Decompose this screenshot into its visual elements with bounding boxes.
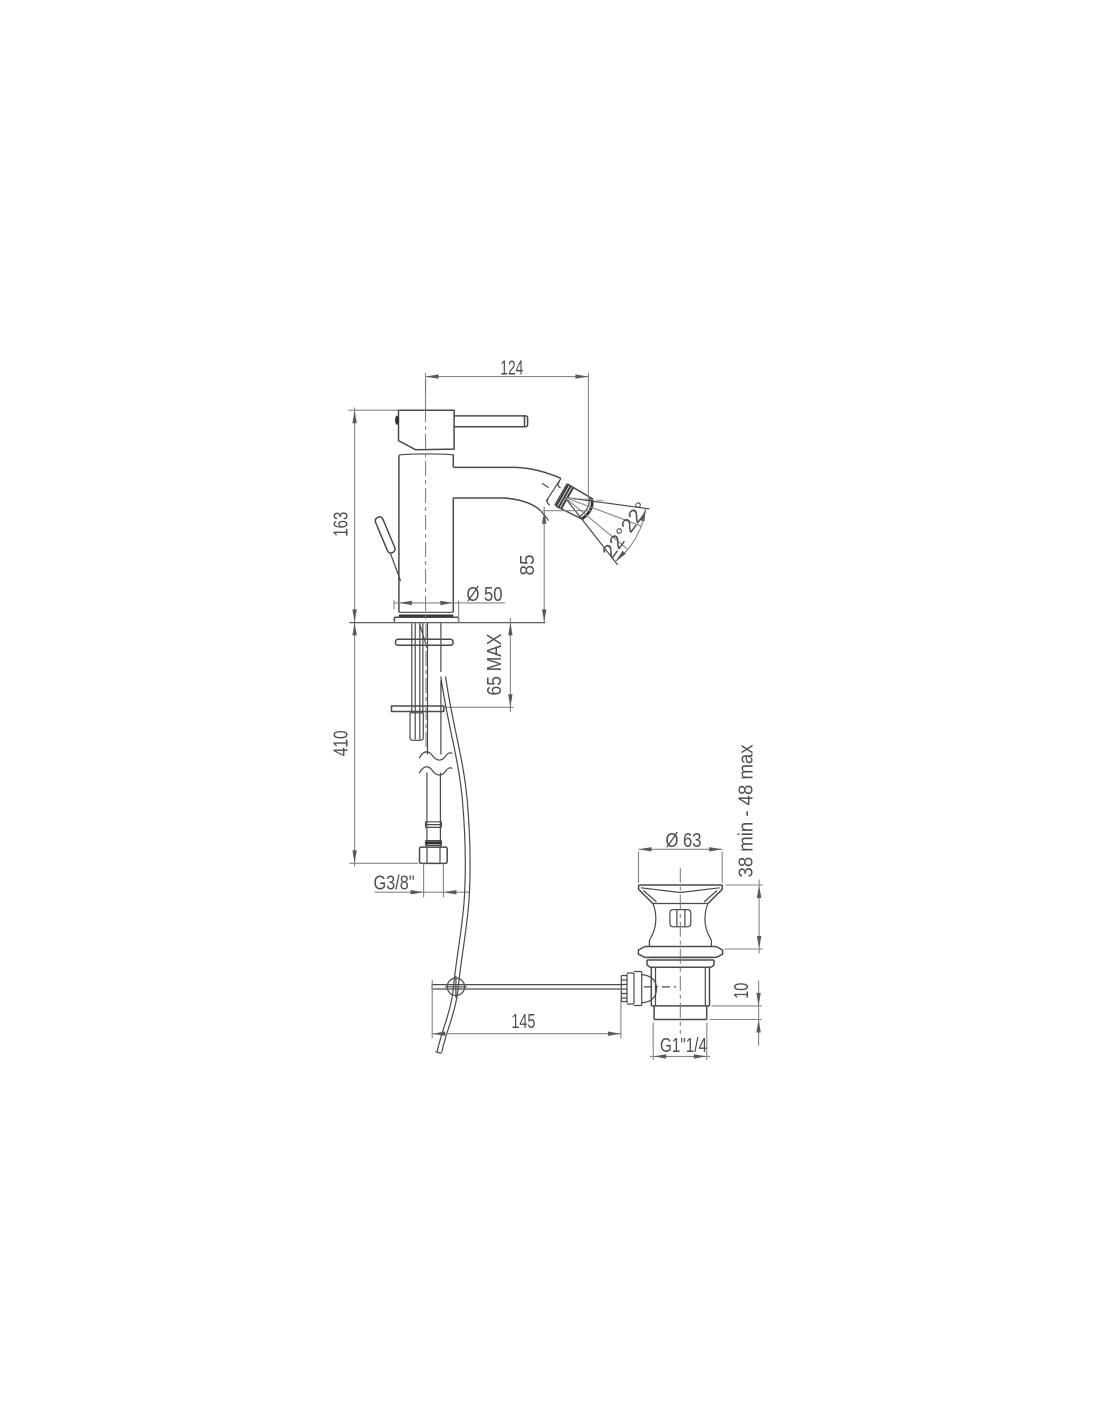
- svg-text:Ø 50: Ø 50: [467, 584, 503, 606]
- svg-text:145: 145: [511, 1011, 535, 1033]
- svg-text:65 MAX: 65 MAX: [484, 634, 506, 696]
- svg-text:Ø 63: Ø 63: [666, 830, 702, 852]
- svg-text:10: 10: [731, 983, 753, 999]
- svg-text:124: 124: [500, 357, 523, 379]
- svg-text:38 min - 48 max: 38 min - 48 max: [736, 745, 758, 878]
- svg-text:163: 163: [330, 512, 352, 537]
- svg-text:410: 410: [330, 730, 352, 756]
- svg-text:G3/8": G3/8": [374, 873, 415, 895]
- svg-text:85: 85: [517, 555, 539, 576]
- svg-text:G1"1/4: G1"1/4: [660, 1035, 707, 1057]
